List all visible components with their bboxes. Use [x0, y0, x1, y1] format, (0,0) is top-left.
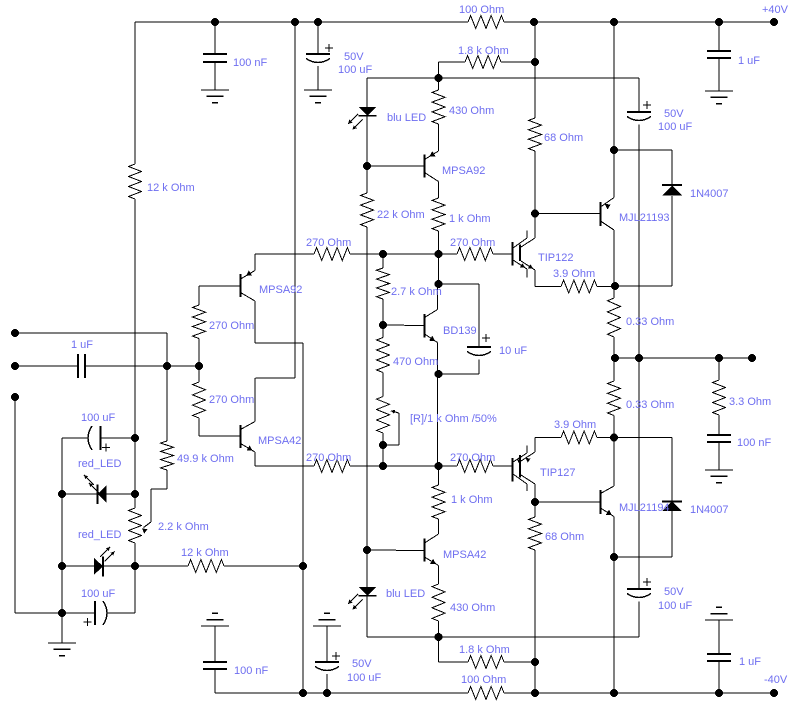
- svg-text:3.9 Ohm: 3.9 Ohm: [554, 419, 596, 431]
- svg-text:100 uF: 100 uF: [658, 600, 693, 612]
- svg-text:100 uF: 100 uF: [81, 412, 116, 424]
- svg-text:22 k Ohm: 22 k Ohm: [377, 209, 425, 221]
- svg-text:270 Ohm: 270 Ohm: [209, 394, 254, 406]
- svg-text:0.33 Ohm: 0.33 Ohm: [626, 316, 674, 328]
- svg-text:blu LED: blu LED: [386, 588, 425, 600]
- svg-text:10 uF: 10 uF: [499, 345, 527, 357]
- svg-text:50V: 50V: [664, 586, 684, 598]
- svg-text:100 nF: 100 nF: [737, 437, 772, 449]
- svg-text:49.9 k Ohm: 49.9 k Ohm: [177, 453, 234, 465]
- svg-text:50V: 50V: [664, 108, 684, 120]
- svg-text:blu LED: blu LED: [387, 112, 426, 124]
- svg-text:1 k Ohm: 1 k Ohm: [449, 213, 491, 225]
- svg-text:2.7 k Ohm: 2.7 k Ohm: [391, 286, 442, 298]
- svg-text:+40V: +40V: [762, 4, 789, 16]
- svg-text:2.2 k Ohm: 2.2 k Ohm: [158, 521, 209, 533]
- svg-text:68 Ohm: 68 Ohm: [545, 531, 584, 543]
- svg-text:12 k Ohm: 12 k Ohm: [181, 547, 229, 559]
- svg-text:270 Ohm: 270 Ohm: [209, 320, 254, 332]
- svg-text:100 nF: 100 nF: [233, 57, 268, 69]
- svg-text:TIP127: TIP127: [540, 467, 575, 479]
- svg-text:100 uF: 100 uF: [338, 64, 373, 76]
- svg-text:270 Ohm: 270 Ohm: [450, 452, 495, 464]
- svg-text:100 Ohm: 100 Ohm: [459, 4, 504, 16]
- svg-text:BD139: BD139: [443, 325, 477, 337]
- svg-text:MPSA92: MPSA92: [442, 165, 485, 177]
- svg-text:430 Ohm: 430 Ohm: [450, 602, 495, 614]
- svg-text:50V: 50V: [344, 51, 364, 63]
- svg-text:100 Ohm: 100 Ohm: [461, 674, 506, 686]
- svg-text:470 Ohm: 470 Ohm: [393, 356, 438, 368]
- svg-text:270 Ohm: 270 Ohm: [306, 237, 351, 249]
- svg-text:MPSA92: MPSA92: [259, 284, 302, 296]
- svg-text:1N4007: 1N4007: [690, 188, 729, 200]
- svg-text:1 uF: 1 uF: [71, 339, 93, 351]
- svg-text:1 uF: 1 uF: [738, 55, 760, 67]
- svg-text:1 uF: 1 uF: [739, 656, 761, 668]
- svg-text:MPSA42: MPSA42: [258, 435, 301, 447]
- svg-text:0.33 Ohm: 0.33 Ohm: [626, 399, 674, 411]
- svg-text:100 uF: 100 uF: [658, 121, 693, 133]
- svg-text:50V: 50V: [352, 658, 372, 670]
- svg-text:-40V: -40V: [764, 674, 788, 686]
- svg-text:MJL21193: MJL21193: [619, 212, 670, 224]
- svg-text:100 uF: 100 uF: [81, 588, 116, 600]
- svg-text:TIP122: TIP122: [538, 252, 573, 264]
- svg-text:1 k Ohm: 1 k Ohm: [451, 494, 493, 506]
- svg-text:3.9 Ohm: 3.9 Ohm: [553, 268, 595, 280]
- svg-text:red_LED: red_LED: [78, 458, 121, 470]
- svg-text:430 Ohm: 430 Ohm: [449, 105, 494, 117]
- svg-text:270 Ohm: 270 Ohm: [450, 237, 495, 249]
- svg-text:270 Ohm: 270 Ohm: [306, 452, 351, 464]
- svg-text:MJL21194: MJL21194: [619, 502, 670, 514]
- svg-text:3.3 Ohm: 3.3 Ohm: [729, 396, 771, 408]
- svg-text:68 Ohm: 68 Ohm: [544, 132, 583, 144]
- svg-text:1.8 k Ohm: 1.8 k Ohm: [459, 644, 510, 656]
- svg-text:MPSA42: MPSA42: [443, 549, 486, 561]
- svg-text:1.8 k Ohm: 1.8 k Ohm: [458, 45, 509, 57]
- svg-text:1N4007: 1N4007: [690, 504, 729, 516]
- svg-text:[R]/1 k Ohm /50%: [R]/1 k Ohm /50%: [410, 413, 497, 425]
- svg-text:100 nF: 100 nF: [234, 665, 269, 677]
- svg-text:100 uF: 100 uF: [347, 672, 382, 684]
- svg-text:12 k Ohm: 12 k Ohm: [147, 182, 195, 194]
- svg-text:red_LED: red_LED: [78, 529, 121, 541]
